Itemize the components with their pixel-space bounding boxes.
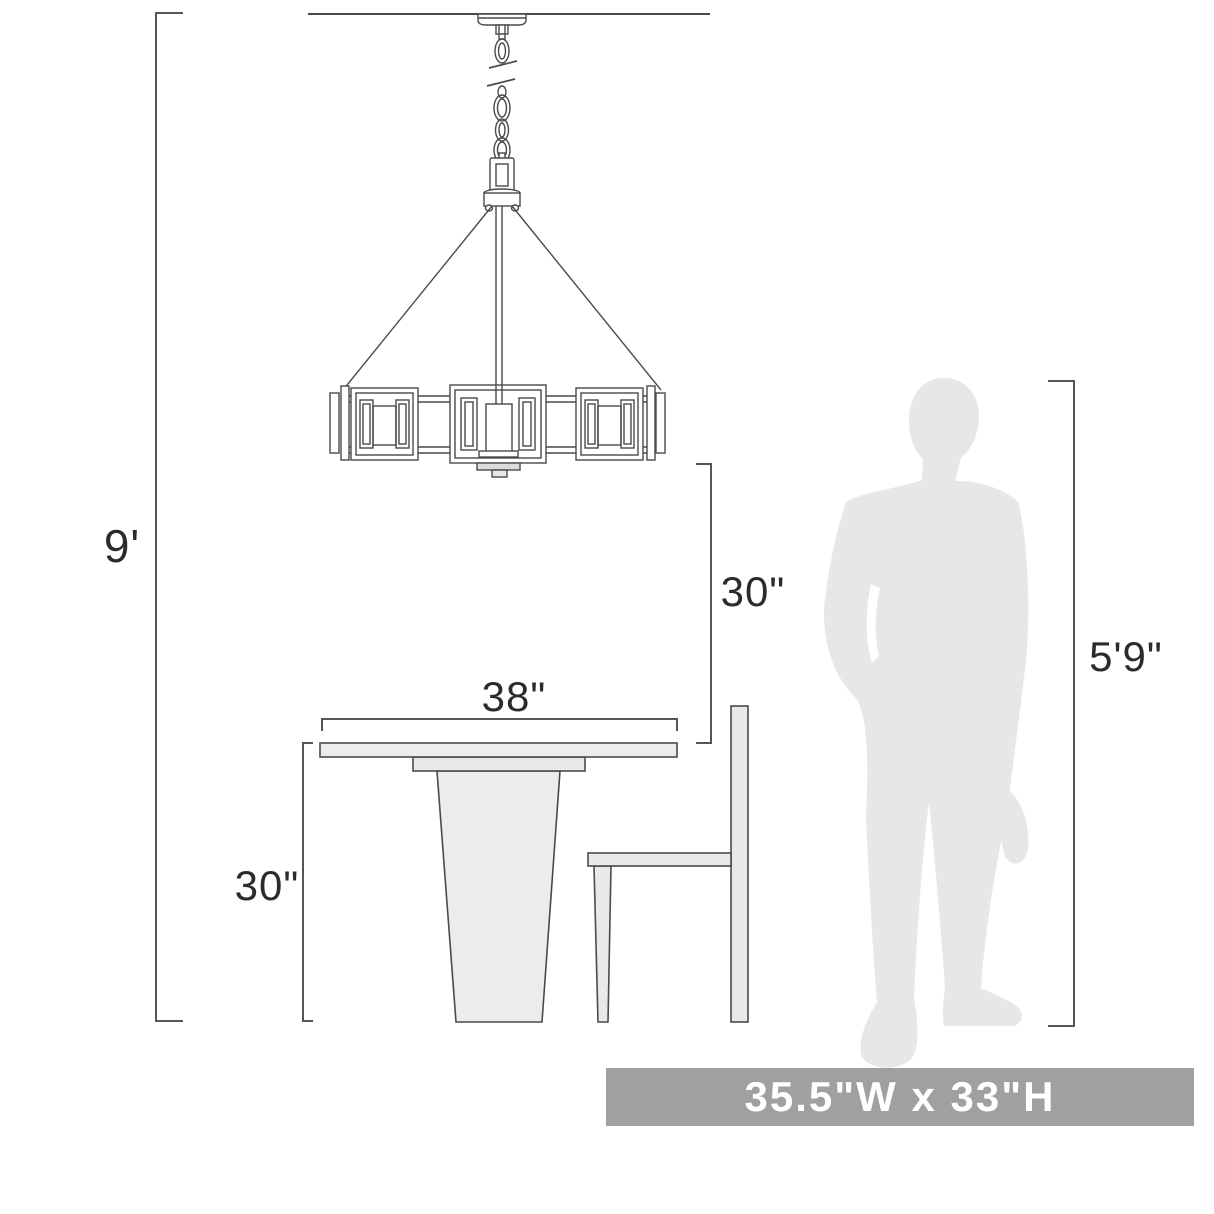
label-person-height: 5'9" — [1089, 633, 1163, 681]
line-drawing — [0, 0, 1214, 1214]
label-table-width: 38" — [482, 673, 547, 721]
table-pedestal — [437, 771, 560, 1022]
bracket-table-height — [303, 743, 313, 1021]
table-top — [320, 743, 677, 757]
dimension-diagram: 9' 30" 38" 30" 5'9" 35.5"W x 33"H — [0, 0, 1214, 1214]
bracket-fixture-to-table — [696, 464, 711, 743]
bracket-person-height — [1048, 381, 1074, 1026]
chair-seat — [588, 853, 731, 866]
chandelier-drawing — [330, 14, 665, 477]
person-silhouette — [824, 378, 1028, 1068]
label-overall-height: 9' — [104, 519, 140, 573]
drum-panel-left — [351, 388, 418, 460]
drum-panel-center — [450, 206, 546, 477]
label-fixture-to-table: 30" — [721, 568, 786, 616]
chair-back — [731, 706, 748, 1022]
table-drawing — [320, 743, 677, 1022]
bracket-overall-height — [156, 13, 183, 1021]
size-banner: 35.5"W x 33"H — [606, 1068, 1194, 1126]
right-hand — [1001, 790, 1028, 863]
canopy — [478, 14, 526, 39]
size-banner-label: 35.5"W x 33"H — [745, 1073, 1056, 1121]
drum-shade — [330, 206, 665, 477]
finial-hub — [484, 153, 520, 211]
label-table-height: 30" — [235, 862, 300, 910]
chain — [487, 39, 517, 162]
drum-panel-right — [576, 388, 643, 460]
table-apron — [413, 757, 585, 771]
chair-front-leg — [594, 866, 611, 1022]
